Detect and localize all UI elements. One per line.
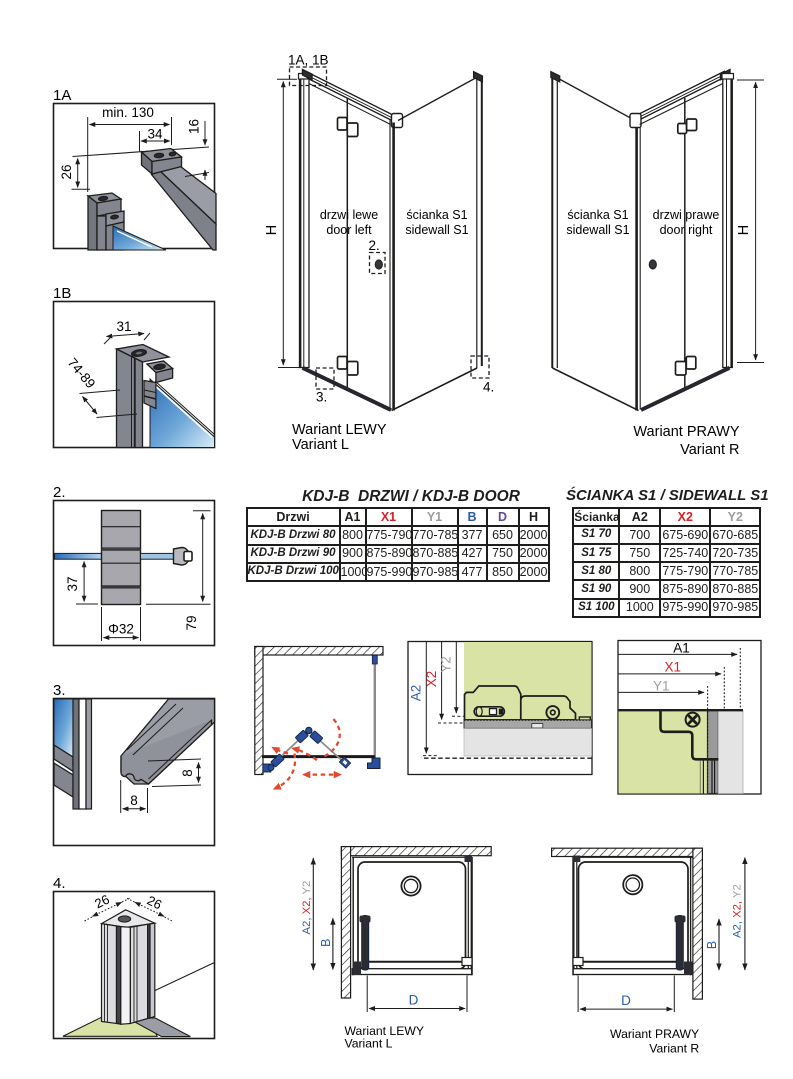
svg-text:B: B xyxy=(319,939,333,947)
svg-text:Variant R: Variant R xyxy=(680,442,739,458)
svg-text:Variant L: Variant L xyxy=(345,1037,393,1051)
svg-text:Wariant LEWY: Wariant LEWY xyxy=(292,422,387,438)
svg-text:1B: 1B xyxy=(53,285,71,302)
svg-text:31: 31 xyxy=(116,319,131,334)
svg-text:sidewall S1: sidewall S1 xyxy=(405,223,468,237)
svg-text:34: 34 xyxy=(147,127,163,142)
svg-text:Variant L: Variant L xyxy=(292,437,349,453)
svg-text:Y2: Y2 xyxy=(439,656,454,673)
svg-text:A2, X2, Y2: A2, X2, Y2 xyxy=(301,881,313,935)
svg-text:D: D xyxy=(409,993,419,1008)
svg-text:sidewall S1: sidewall S1 xyxy=(566,223,629,237)
svg-text:79: 79 xyxy=(184,615,199,630)
svg-text:4.: 4. xyxy=(483,380,494,395)
svg-text:4.: 4. xyxy=(53,875,66,892)
svg-text:D: D xyxy=(621,993,631,1008)
svg-text:Y1: Y1 xyxy=(653,679,670,694)
svg-text:Wariant PRAWY: Wariant PRAWY xyxy=(633,424,739,440)
svg-text:ścianka S1: ścianka S1 xyxy=(406,208,467,222)
svg-text:drzwi prawe: drzwi prawe xyxy=(653,208,720,222)
svg-text:drzwi lewe: drzwi lewe xyxy=(320,208,378,222)
svg-text:Wariant PRAWY: Wariant PRAWY xyxy=(610,1027,699,1041)
svg-text:door left: door left xyxy=(326,223,372,237)
svg-text:ścianka S1: ścianka S1 xyxy=(567,208,628,222)
svg-text:26: 26 xyxy=(59,164,74,179)
svg-text:Variant R: Variant R xyxy=(649,1042,699,1056)
svg-text:min. 130: min. 130 xyxy=(102,105,154,120)
svg-text:3.: 3. xyxy=(53,682,66,699)
svg-text:8: 8 xyxy=(130,793,138,808)
svg-text:A2, X2, Y2: A2, X2, Y2 xyxy=(732,884,744,938)
svg-text:B: B xyxy=(705,941,719,949)
svg-text:1A, 1B: 1A, 1B xyxy=(288,53,329,68)
svg-text:37: 37 xyxy=(65,576,80,591)
svg-text:X1: X1 xyxy=(665,660,682,675)
svg-text:A1: A1 xyxy=(673,641,690,656)
svg-text:H: H xyxy=(736,225,752,235)
svg-text:1A: 1A xyxy=(53,87,71,104)
svg-text:A2: A2 xyxy=(409,685,424,702)
svg-text:8: 8 xyxy=(180,769,195,777)
svg-text:Φ32: Φ32 xyxy=(108,622,134,637)
svg-text:2.: 2. xyxy=(369,238,380,253)
svg-text:2.: 2. xyxy=(53,484,66,501)
svg-text:door right: door right xyxy=(660,223,713,237)
svg-text:3.: 3. xyxy=(316,390,327,405)
svg-text:16: 16 xyxy=(187,119,202,134)
svg-text:X2: X2 xyxy=(424,671,439,688)
svg-text:H: H xyxy=(264,225,280,235)
